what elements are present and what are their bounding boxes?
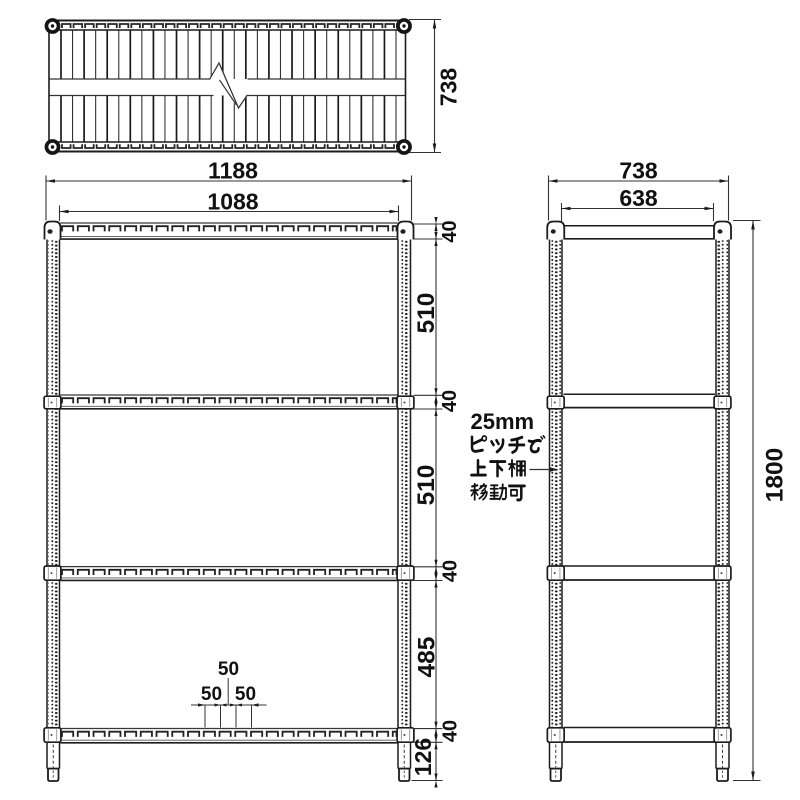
svg-text:510: 510 bbox=[413, 465, 440, 506]
svg-text:50: 50 bbox=[235, 684, 256, 705]
svg-text:1188: 1188 bbox=[208, 158, 258, 184]
svg-text:510: 510 bbox=[413, 293, 440, 334]
svg-text:40: 40 bbox=[440, 720, 462, 742]
svg-text:126: 126 bbox=[410, 738, 436, 776]
svg-text:1800: 1800 bbox=[762, 448, 789, 503]
svg-text:50: 50 bbox=[218, 659, 239, 680]
svg-text:40: 40 bbox=[440, 560, 462, 582]
svg-text:485: 485 bbox=[414, 637, 441, 678]
svg-text:25mm: 25mm bbox=[471, 409, 535, 434]
svg-text:50: 50 bbox=[201, 684, 222, 705]
svg-text:1088: 1088 bbox=[207, 189, 258, 215]
svg-text:738: 738 bbox=[619, 158, 658, 184]
svg-text:40: 40 bbox=[439, 220, 461, 242]
svg-text:738: 738 bbox=[436, 68, 462, 107]
svg-text:40: 40 bbox=[439, 390, 461, 412]
svg-text:638: 638 bbox=[619, 185, 658, 211]
